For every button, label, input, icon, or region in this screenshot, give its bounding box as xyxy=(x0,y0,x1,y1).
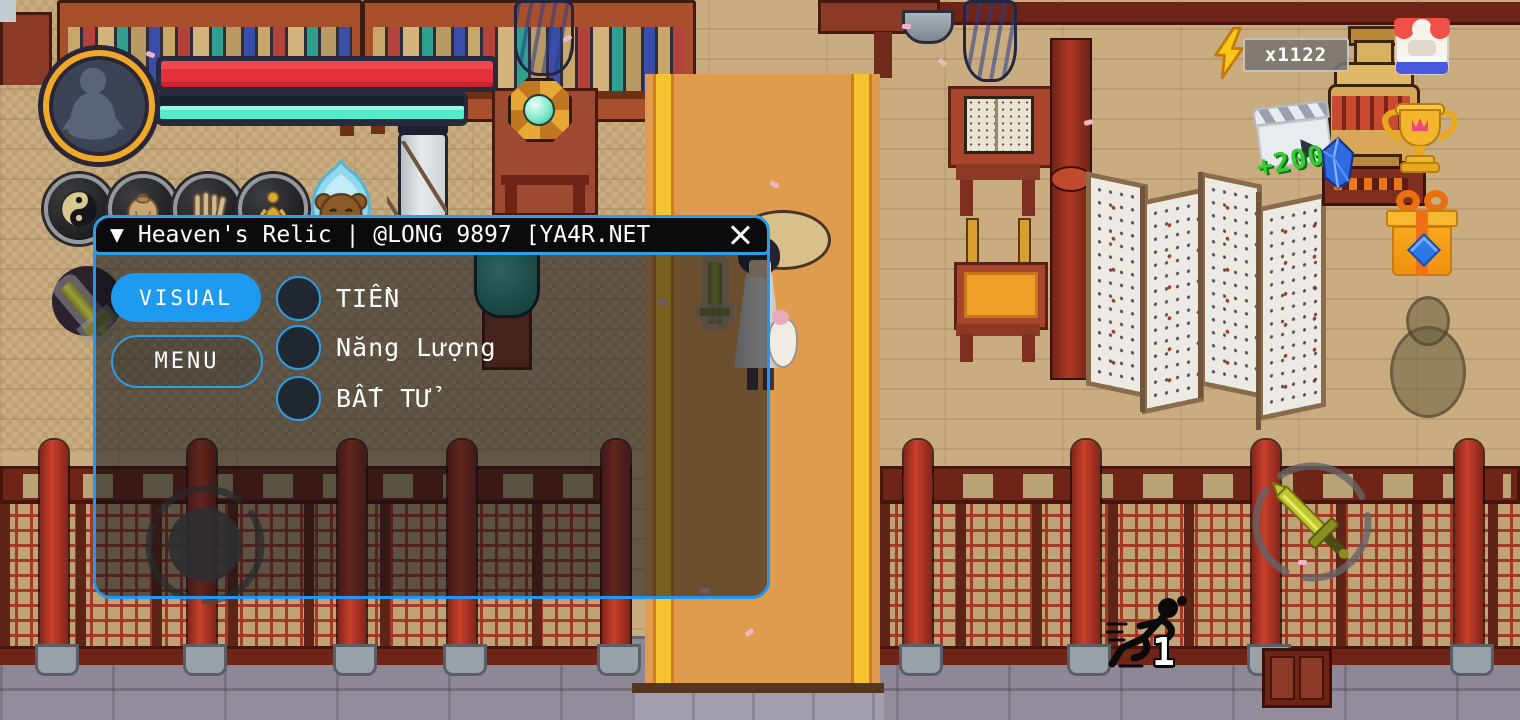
path-steps xyxy=(632,693,884,720)
tab-visual[interactable]: VISUAL xyxy=(111,273,261,322)
tab-visual-label: VISUAL xyxy=(139,286,233,310)
petal xyxy=(902,24,911,29)
gourd-top xyxy=(1406,296,1450,346)
open-book xyxy=(964,96,1034,154)
health-fill xyxy=(161,61,493,87)
chair xyxy=(948,218,1048,358)
energy-count: x1122 xyxy=(1265,44,1327,66)
option-money-checkbox[interactable] xyxy=(276,276,321,321)
shop-icon[interactable] xyxy=(1386,16,1458,86)
mod-menu-panel: ▼ Heaven's Relic | @LONG 9897 [YA4R.NET … xyxy=(93,215,770,599)
option-immortal[interactable]: BẤT TỬ xyxy=(276,376,432,421)
attack-button[interactable] xyxy=(1249,459,1375,585)
option-energy-label: Năng Lượng xyxy=(336,333,497,362)
tab-menu-label: MENU xyxy=(155,349,220,374)
mana-fill xyxy=(160,106,464,119)
fence-pillar xyxy=(1072,440,1100,658)
player-avatar[interactable] xyxy=(43,50,155,162)
sword-icon xyxy=(1261,471,1359,569)
close-icon[interactable] xyxy=(727,222,753,248)
empty-bar xyxy=(160,96,464,105)
energy-count-badge: x1122 xyxy=(1243,38,1349,72)
dash-count: 1 xyxy=(1152,630,1175,674)
mod-menu-title: Heaven's Relic | @LONG 9897 [YA4R.NET xyxy=(138,222,713,248)
option-energy[interactable]: Năng Lượng xyxy=(276,325,497,370)
option-immortal-label: BẤT TỬ xyxy=(336,384,432,413)
gift-bow-icon xyxy=(1396,190,1420,212)
gift-box-button[interactable] xyxy=(1384,190,1460,280)
option-immortal-checkbox[interactable] xyxy=(276,376,321,421)
game-screen: x1122 +200 xyxy=(0,0,1520,720)
wall-corner xyxy=(0,0,16,22)
trophy-icon[interactable] xyxy=(1378,100,1462,182)
path-edge xyxy=(632,683,884,693)
option-money[interactable]: TIỀN xyxy=(276,276,400,321)
reading-desk xyxy=(948,86,1048,216)
health-bar xyxy=(156,56,498,92)
mod-menu-titlebar[interactable]: ▼ Heaven's Relic | @LONG 9897 [YA4R.NET xyxy=(93,215,770,255)
left-table xyxy=(0,12,52,85)
tab-menu[interactable]: MENU xyxy=(111,335,263,388)
blue-crystal-icon xyxy=(1318,136,1358,190)
option-energy-checkbox[interactable] xyxy=(276,325,321,370)
teal-orb xyxy=(523,94,555,126)
porcelain-vase xyxy=(963,0,1017,82)
energy-bars xyxy=(156,92,468,126)
option-money-label: TIỀN xyxy=(336,284,400,313)
fence-door xyxy=(1262,648,1332,708)
meditating-figure-icon xyxy=(49,56,137,144)
fence-pillar xyxy=(904,440,932,658)
fence-pillar xyxy=(1455,440,1483,658)
folding-screen xyxy=(1086,158,1334,418)
collapse-icon[interactable]: ▼ xyxy=(110,222,124,248)
fence-pillar xyxy=(40,440,68,658)
